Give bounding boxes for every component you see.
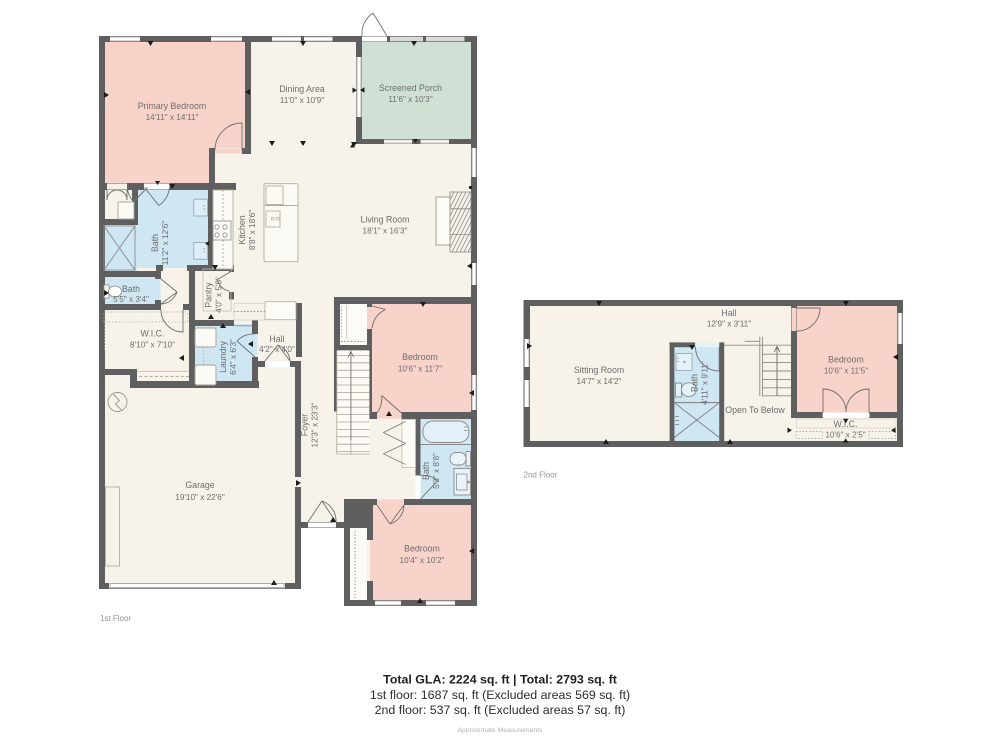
svg-text:10'4" x 10'2": 10'4" x 10'2"	[400, 556, 445, 565]
svg-text:Bath: Bath	[690, 374, 700, 392]
svg-text:5'3" x 8'8": 5'3" x 8'8"	[432, 453, 441, 489]
svg-text:Dining Area: Dining Area	[279, 84, 325, 94]
svg-text:10'6" x 11'5": 10'6" x 11'5"	[824, 367, 868, 376]
svg-text:Garage: Garage	[185, 480, 214, 490]
svg-text:8'10" x 7'10": 8'10" x 7'10"	[130, 340, 175, 349]
svg-text:Bath: Bath	[421, 462, 431, 480]
svg-text:Bedroom: Bedroom	[404, 544, 440, 554]
svg-text:Bedroom: Bedroom	[402, 352, 438, 362]
svg-text:W.I.C.: W.I.C.	[141, 329, 165, 339]
svg-text:Laundry: Laundry	[218, 341, 228, 373]
svg-text:Pantry: Pantry	[204, 282, 214, 308]
svg-text:Bath: Bath	[122, 284, 140, 294]
svg-text:14'11" x 14'11": 14'11" x 14'11"	[146, 113, 199, 122]
svg-text:Screened Porch: Screened Porch	[379, 83, 442, 93]
svg-text:Total GLA: 2224 sq. ft | Total: Total GLA: 2224 sq. ft | Total: 2793 sq.…	[383, 673, 617, 687]
svg-text:1st floor: 1687 sq. ft (Exclud: 1st floor: 1687 sq. ft (Excluded areas 5…	[370, 688, 630, 702]
svg-text:11'0" x 10'9": 11'0" x 10'9"	[280, 96, 324, 105]
svg-text:Living Room: Living Room	[361, 215, 410, 225]
svg-text:18'1" x 16'3": 18'1" x 16'3"	[363, 227, 408, 236]
svg-text:Open To Below: Open To Below	[725, 405, 785, 415]
svg-text:14'7" x 14'2": 14'7" x 14'2"	[577, 377, 622, 386]
svg-text:5'5" x 3'4": 5'5" x 3'4"	[113, 295, 149, 304]
svg-text:Primary Bedroom: Primary Bedroom	[138, 101, 206, 111]
svg-text:11'6" x 10'3": 11'6" x 10'3"	[388, 95, 432, 104]
svg-text:12'3" x 23'3": 12'3" x 23'3"	[311, 402, 320, 447]
svg-text:1st Floor: 1st Floor	[100, 614, 131, 623]
svg-text:2nd floor: 537 sq. ft (Exclude: 2nd floor: 537 sq. ft (Excluded areas 57…	[375, 703, 626, 717]
svg-text:Hall: Hall	[269, 334, 284, 344]
svg-text:4'0" x 5'8": 4'0" x 5'8"	[215, 277, 224, 313]
svg-text:10'6" x 11'7": 10'6" x 11'7"	[398, 365, 442, 374]
svg-text:4'2" x 4'0": 4'2" x 4'0"	[259, 345, 295, 354]
svg-text:8'8" x 18'6": 8'8" x 18'6"	[248, 210, 257, 250]
svg-text:Bedroom: Bedroom	[828, 355, 864, 365]
svg-text:10'6" x 2'5": 10'6" x 2'5"	[825, 431, 865, 440]
svg-text:19'10" x 22'6": 19'10" x 22'6"	[175, 493, 225, 502]
svg-text:Sitting Room: Sitting Room	[574, 365, 624, 375]
svg-text:11'2" x 12'6": 11'2" x 12'6"	[161, 221, 170, 265]
svg-text:Approximate Measurements: Approximate Measurements	[458, 727, 544, 734]
svg-text:4'11" x 9'11": 4'11" x 9'11"	[701, 361, 710, 405]
svg-text:2nd Floor: 2nd Floor	[524, 471, 558, 480]
svg-text:Foyer: Foyer	[300, 414, 310, 437]
svg-text:6'4" x 6'3": 6'4" x 6'3"	[229, 339, 238, 375]
svg-text:Kitchen: Kitchen	[237, 215, 247, 244]
svg-text:Bath: Bath	[150, 234, 160, 252]
svg-text:12'9" x 3'11": 12'9" x 3'11"	[707, 320, 751, 329]
svg-text:Hall: Hall	[721, 308, 736, 318]
